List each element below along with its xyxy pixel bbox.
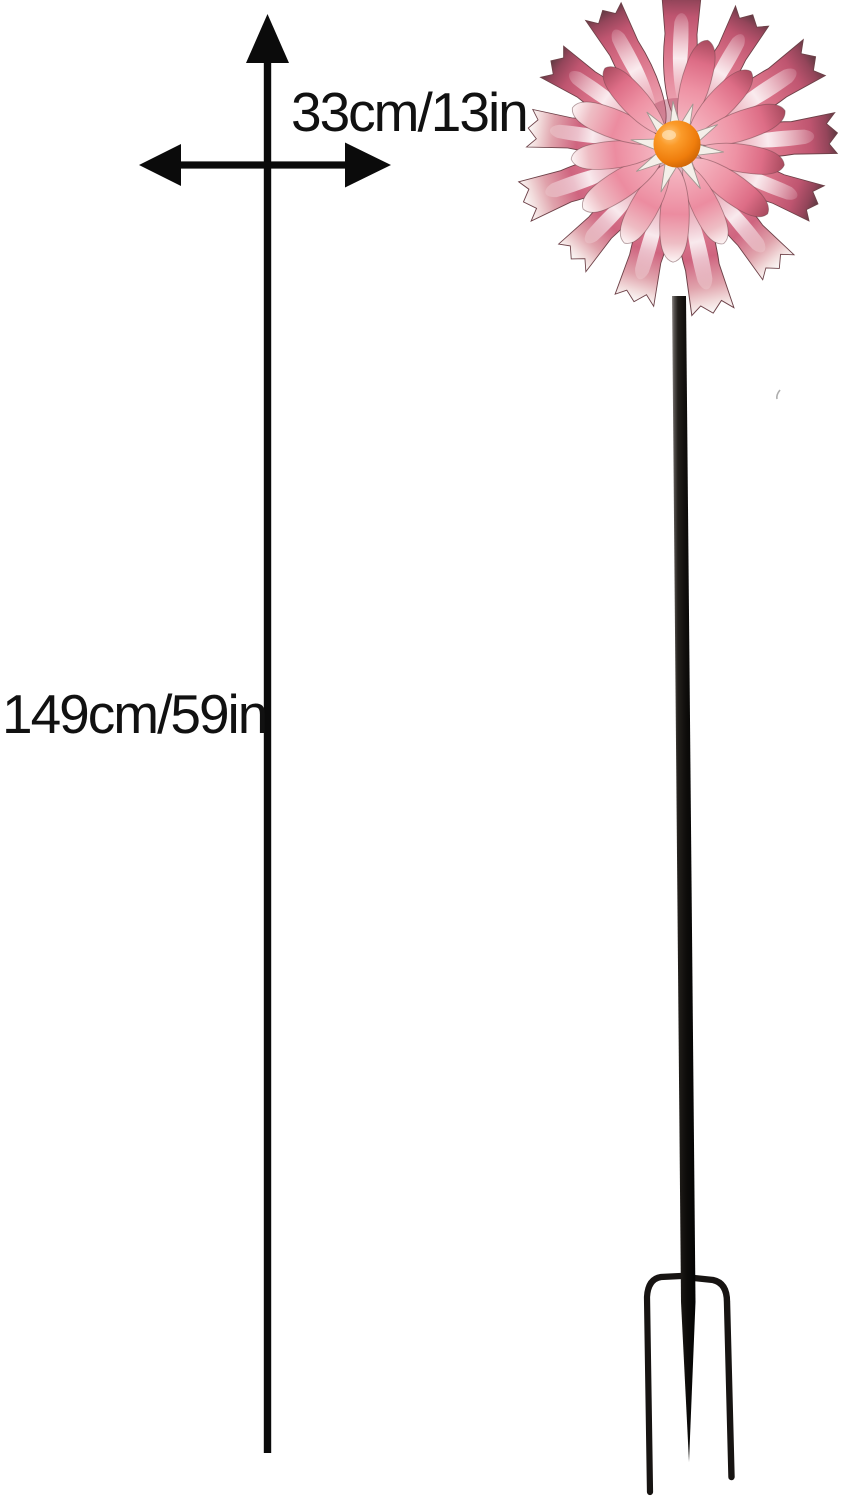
flower-center-hub <box>654 121 701 168</box>
hub-highlight <box>662 130 676 140</box>
stake-pole <box>672 296 696 1462</box>
product-dimension-image: 33cm/13in 149cm/59in <box>0 0 841 1500</box>
diagram-graphics <box>0 0 841 1500</box>
right-arrowhead-icon <box>345 143 391 188</box>
ground-prong-right <box>694 1278 732 1477</box>
garden-stake <box>647 296 732 1492</box>
orange-hub-ball <box>654 121 701 168</box>
width-dimension-label: 33cm/13in <box>291 85 527 140</box>
height-dimension-label: 149cm/59in <box>2 687 266 742</box>
left-arrowhead-icon <box>139 144 181 186</box>
pinwheel-flower <box>517 0 839 318</box>
width-arrow-line <box>176 161 348 168</box>
up-arrowhead-icon <box>246 14 289 63</box>
height-arrow-line <box>264 40 271 1453</box>
ground-prong-left <box>647 1276 681 1492</box>
stray-mark <box>777 390 780 399</box>
